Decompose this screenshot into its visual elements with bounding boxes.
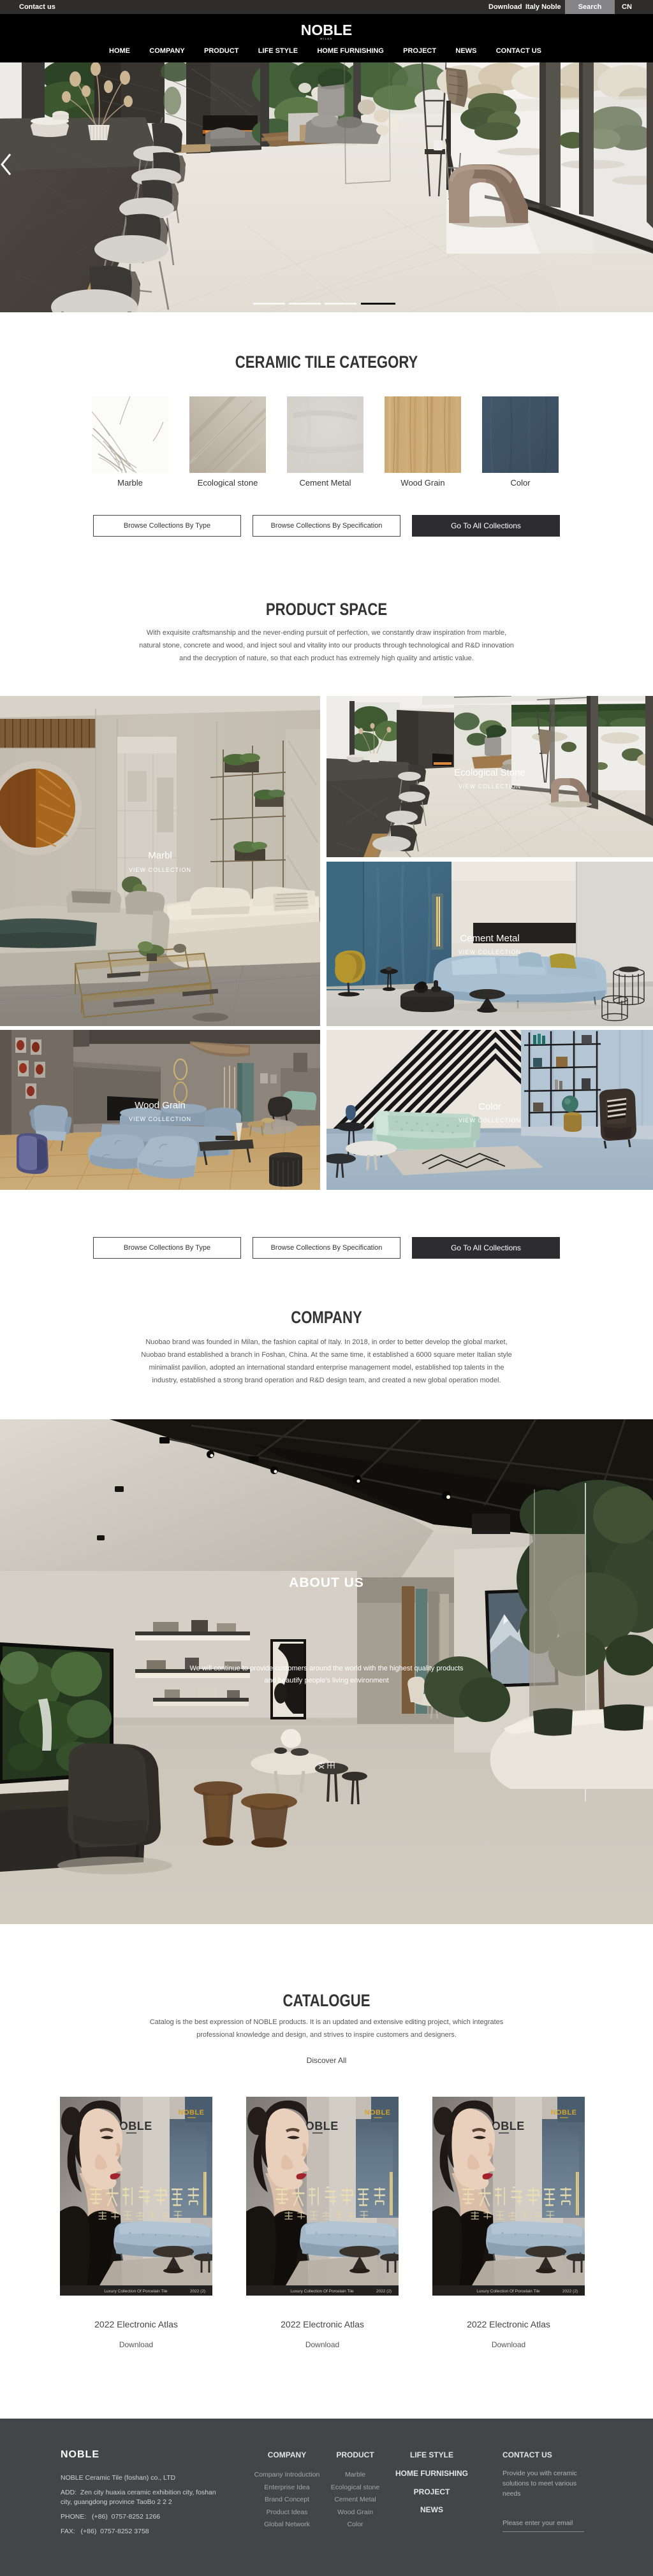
svg-text:Luxury Collection Of Porcelain: Luxury Collection Of Porcelain Tile bbox=[476, 2289, 540, 2294]
svg-text:2022 (2): 2022 (2) bbox=[190, 2289, 205, 2294]
svg-text:2022 (2): 2022 (2) bbox=[562, 2289, 578, 2294]
svg-text:NOBLE: NOBLE bbox=[365, 2109, 391, 2117]
svg-text:2022 (2): 2022 (2) bbox=[376, 2289, 392, 2294]
svg-text:NOBLE: NOBLE bbox=[179, 2109, 205, 2117]
svg-text:NOBLE: NOBLE bbox=[551, 2109, 577, 2117]
svg-text:Luxury Collection Of Porcelain: Luxury Collection Of Porcelain Tile bbox=[104, 2289, 168, 2294]
svg-text:Luxury Collection Of Porcelain: Luxury Collection Of Porcelain Tile bbox=[290, 2289, 354, 2294]
